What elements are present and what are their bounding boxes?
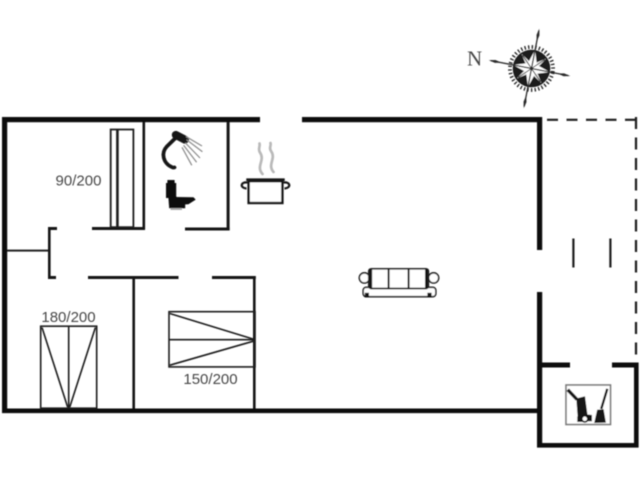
svg-text:180/200: 180/200 — [41, 309, 95, 326]
svg-text:90/200: 90/200 — [56, 173, 102, 190]
svg-text:N: N — [467, 47, 482, 71]
svg-text:150/200: 150/200 — [183, 371, 237, 388]
